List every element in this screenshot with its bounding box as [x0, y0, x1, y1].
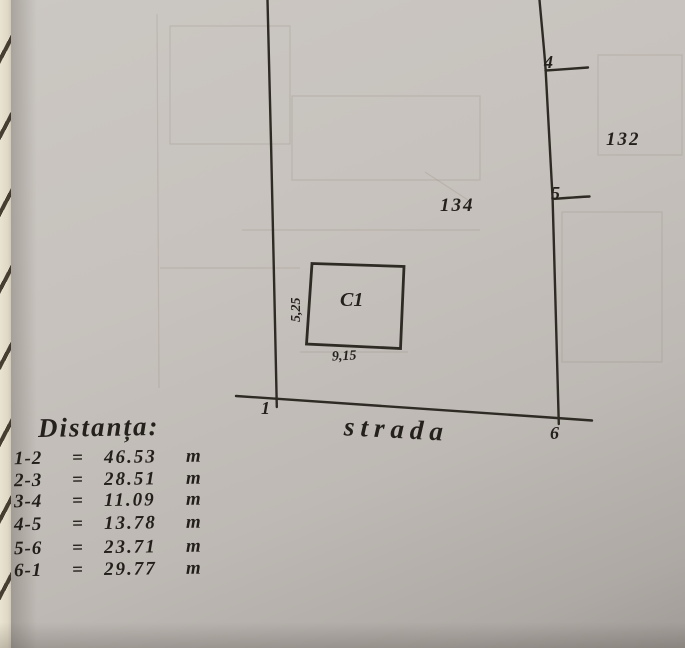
distance-unit: m: [186, 468, 202, 490]
distance-row-1: 1-2 = 46.53 m: [14, 446, 202, 471]
west-boundary-line: [268, 0, 277, 407]
street-name: strada: [343, 413, 449, 445]
segment-label: 6-1: [14, 560, 72, 583]
distance-row-6: 6-1 = 29.77 m: [14, 558, 202, 583]
distance-unit: m: [186, 489, 202, 511]
distance-row-3: 3-4 = 11.09 m: [14, 489, 202, 514]
distance-unit: m: [186, 536, 202, 558]
equals-sign: =: [72, 469, 104, 491]
photo-bottom-shadow: [0, 622, 685, 648]
point-label-1: 1: [261, 399, 270, 417]
equals-sign: =: [72, 513, 104, 535]
equals-sign: =: [72, 559, 104, 581]
distance-row-4: 4-5 = 13.78 m: [14, 512, 202, 537]
distances-title: Distanța:: [38, 413, 160, 442]
distance-row-5: 5-6 = 23.71 m: [14, 536, 202, 561]
distance-unit: m: [186, 512, 202, 534]
point-label-4: 4: [544, 53, 553, 71]
distance-value: 23.71: [104, 536, 186, 559]
point-label-5: 5: [551, 184, 560, 202]
equals-sign: =: [72, 490, 104, 512]
segment-label: 4-5: [14, 514, 72, 537]
distance-value: 11.09: [104, 489, 186, 512]
segment-label: 2-3: [14, 470, 72, 493]
segment-label: 1-2: [14, 448, 72, 471]
equals-sign: =: [72, 537, 104, 559]
building-label: C1: [340, 290, 363, 310]
parcel-number: 134: [440, 196, 475, 215]
faint-pencil-traces: [157, 14, 682, 388]
distance-value: 46.53: [104, 446, 186, 469]
equals-sign: =: [72, 447, 104, 469]
building-side-dimension: 5,25: [290, 298, 304, 323]
building-front-dimension: 9,15: [332, 349, 357, 364]
distance-unit: m: [186, 446, 202, 468]
adjacent-parcel-number: 132: [606, 130, 641, 149]
distance-value: 29.77: [104, 558, 186, 581]
segment-label: 3-4: [14, 491, 72, 514]
distance-unit: m: [186, 558, 202, 580]
distance-value: 13.78: [104, 512, 186, 535]
notebook-page-photo: 1 4 5 6 132 134 strada C1 9,15 5,25 Dist…: [0, 0, 685, 648]
segment-label: 5-6: [14, 538, 72, 561]
distance-value: 28.51: [104, 468, 186, 491]
point-label-6: 6: [550, 424, 559, 442]
